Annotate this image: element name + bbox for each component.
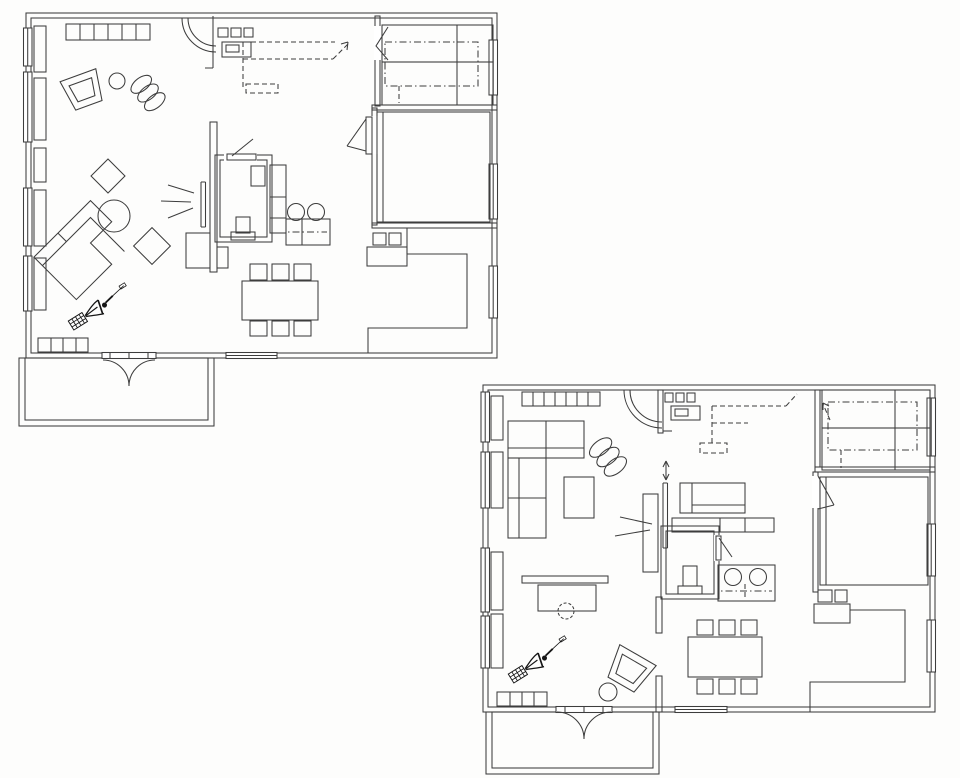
bottom-wall-window bbox=[226, 353, 277, 359]
paper-background bbox=[0, 0, 960, 778]
floor-plans-page bbox=[0, 0, 960, 778]
floor-plans-drawing bbox=[0, 0, 960, 778]
bottom-wall-window bbox=[675, 707, 727, 713]
